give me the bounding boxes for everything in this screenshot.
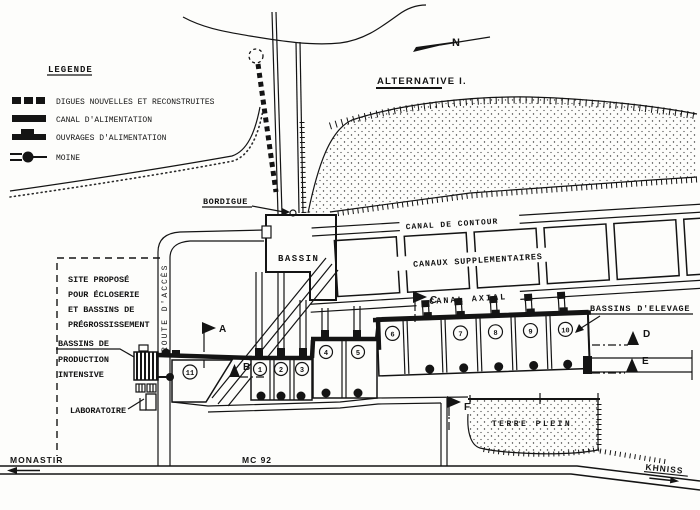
legend: LEGENDE DIGUES NOUVELLES ET RECONSTRUITE… (10, 65, 215, 163)
bottom-road: MONASTIR MC 92 KHNISS (0, 455, 700, 490)
basin-number-3: 3 (300, 367, 304, 375)
production-line-2: PRODUCTION (58, 355, 109, 365)
legend-item-1-label: DIGUES NOUVELLES ET RECONSTRUITES (56, 98, 215, 107)
scanned-site-plan: CANAL DE CONTOUR CANAUX SUPPLEMENTAIRES … (0, 0, 700, 510)
bassins-elevage-callout: BASSINS D'ELEVAGE (575, 304, 693, 333)
marker-d-letter: D (643, 329, 650, 340)
basin-number-10: 10 (561, 327, 570, 335)
site-note-line-4: PRÉGROSSISSEMENT (68, 319, 150, 330)
laboratoire-label: LABORATOIRE (70, 406, 126, 416)
alternative-title: ALTERNATIVE I. (376, 76, 467, 88)
solid-canal-symbol-icon (12, 115, 46, 122)
marker-a-letter: A (219, 324, 226, 335)
legend-item-2-label: CANAL D'ALIMENTATION (56, 116, 152, 125)
laboratory: LABORATOIRE (70, 394, 156, 416)
site-note: SITE PROPOSÉ POUR ÉCLOSERIE ET BASSINS D… (68, 274, 150, 330)
basin-number-11: 11 (186, 370, 194, 378)
terre-plein: TERRE PLEIN (468, 393, 668, 462)
production-line-3: INTENSIVE (58, 370, 104, 380)
drain-channel (172, 397, 468, 466)
monastir-direction-arrow-icon (7, 467, 40, 474)
moine-symbol-icon (10, 152, 47, 163)
production-line-1: BASSINS DE (58, 339, 109, 349)
alternative-label: ALTERNATIVE I. (377, 76, 467, 87)
section-marker-a: A (202, 322, 226, 368)
bassin-label: BASSIN (278, 254, 319, 264)
intake-structure-symbol-icon (12, 129, 46, 140)
production-block (134, 345, 158, 392)
north-letter: N (452, 37, 460, 49)
basin-number-9: 9 (528, 329, 532, 337)
monastir-label: MONASTIR (10, 455, 63, 465)
site-note-line-2: POUR ÉCLOSERIE (68, 289, 139, 300)
basin-number-8: 8 (493, 330, 497, 338)
jetty-dike-dashed (258, 64, 276, 192)
site-note-line-3: ET BASSINS DE (68, 305, 134, 315)
marker-f-letter: F (464, 402, 470, 413)
basin-number-2: 2 (279, 367, 283, 375)
bassins-elevage-label: BASSINS D'ELEVAGE (590, 304, 690, 314)
marker-b-letter: B (243, 362, 250, 373)
legend-title: LEGENDE (48, 65, 93, 75)
north-arrow-icon: N (413, 37, 490, 52)
basin-number-7: 7 (458, 331, 462, 339)
basin-number-1: 1 (258, 367, 262, 375)
site-note-line-1: SITE PROPOSÉ (68, 274, 129, 285)
site-plan-drawing: CANAL DE CONTOUR CANAUX SUPPLEMENTAIRES … (0, 0, 700, 510)
production-note: BASSINS DE PRODUCTION INTENSIVE (56, 339, 134, 380)
section-marker-f: F (447, 396, 470, 430)
dune-hill (308, 97, 697, 214)
marker-e-letter: E (642, 356, 649, 367)
basin-number-5: 5 (356, 350, 360, 358)
basin-number-6: 6 (390, 331, 394, 339)
legend-item-3-label: OUVRAGES D'ALIMENTATION (56, 134, 167, 143)
rearing-basins-6-10: 6 7 8 9 10 (373, 306, 593, 376)
basin-number-4: 4 (324, 350, 328, 358)
basins-1-3: 1 2 3 (249, 357, 314, 401)
terre-plein-label: TERRE PLEIN (492, 420, 572, 429)
legend-item-4-label: MOINE (56, 154, 80, 163)
section-marker-d: D (592, 329, 650, 345)
bordigue-canal (249, 12, 304, 214)
marker-c-letter: C (430, 295, 437, 306)
dashed-dike-symbol-icon (12, 97, 45, 104)
khniss-group: KHNISS (643, 462, 689, 485)
mc92-label: MC 92 (242, 455, 272, 465)
outlet-channel (583, 350, 692, 380)
bordigue-label: BORDIGUE (203, 197, 248, 207)
route-acces-label: ROUTE D'ACCÈS (161, 264, 170, 352)
main-bassin: BASSIN (266, 215, 336, 300)
